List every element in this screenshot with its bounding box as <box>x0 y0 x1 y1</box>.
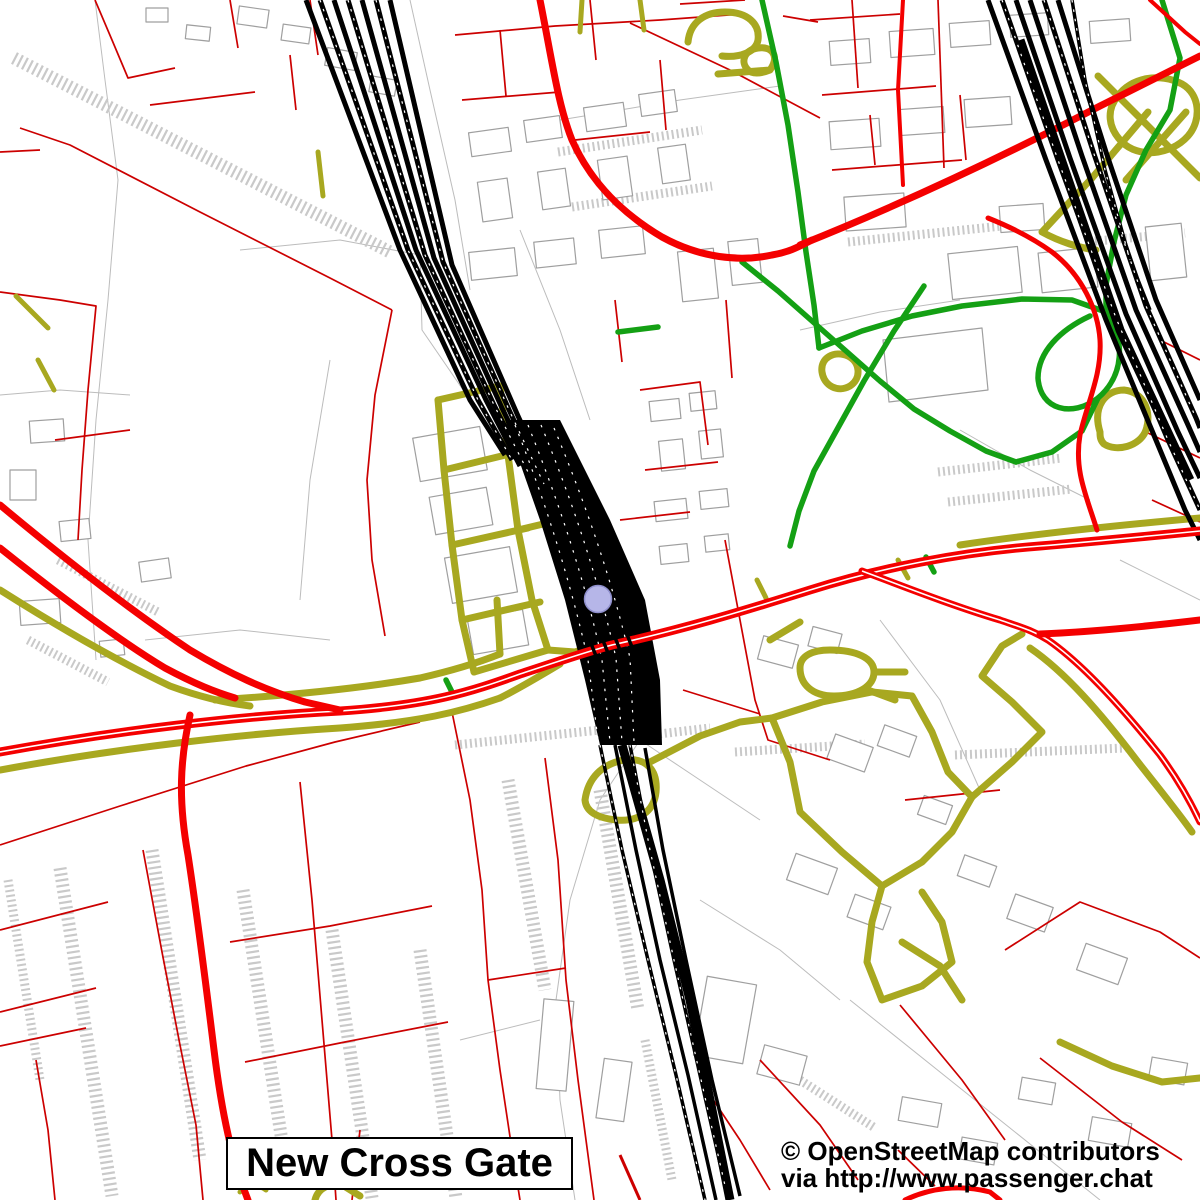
attribution-line1: © OpenStreetMap contributors <box>781 1138 1200 1165</box>
place-label-text: New Cross Gate <box>246 1141 553 1186</box>
map-canvas <box>0 0 1200 1200</box>
attribution: © OpenStreetMap contributors via http://… <box>781 1138 1200 1192</box>
place-label: New Cross Gate <box>226 1137 573 1190</box>
map-viewport: New Cross Gate © OpenStreetMap contribut… <box>0 0 1200 1200</box>
railway-layer <box>306 0 1200 1200</box>
attribution-line2: via http://www.passenger.chat <box>781 1165 1200 1192</box>
rail-station-marker <box>585 586 612 613</box>
